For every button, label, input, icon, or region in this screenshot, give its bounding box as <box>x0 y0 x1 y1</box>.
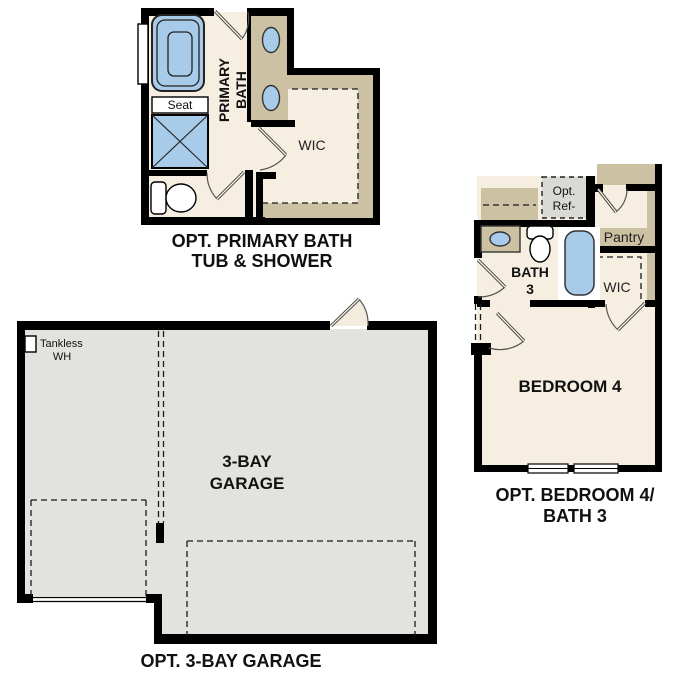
section-garage: Tankless WH 3-BAY GARAGE OPT. 3-BAY GARA… <box>17 299 437 671</box>
window <box>138 24 148 84</box>
floor-plan-canvas: PRIMARY BATH WIC Seat OPT. PRIMARY BATH … <box>0 0 687 687</box>
tankless-water-heater <box>25 336 36 352</box>
tankless-wh-label-line: Tankless <box>40 338 83 350</box>
room-label-garage-line: GARAGE <box>210 474 285 493</box>
door-swing <box>331 299 368 326</box>
room-label-bath3-line: 3 <box>526 281 534 297</box>
opt-ref-label-line: Opt. <box>553 184 576 198</box>
opt-ref-label-line: Ref- <box>553 199 576 213</box>
section-title-line: OPT. BEDROOM 4/ <box>495 485 654 505</box>
toilet <box>151 182 196 214</box>
room-label-garage-line: 3-BAY <box>222 452 272 471</box>
room-label-wic: WIC <box>603 279 630 295</box>
garage-door <box>33 596 146 603</box>
garage-bay-floor <box>24 329 162 598</box>
room-label-line: PRIMARY <box>216 57 232 122</box>
tankless-wh-label-line: WH <box>53 351 71 363</box>
section-title-line: BATH 3 <box>543 506 607 526</box>
garage-floor <box>162 329 428 634</box>
room-label-wic: WIC <box>298 137 325 153</box>
tub <box>565 231 594 295</box>
kitchen-counter <box>481 188 538 223</box>
room-label-line: BATH <box>233 71 249 109</box>
shower <box>152 115 208 168</box>
sink <box>263 28 280 53</box>
section-title-line: TUB & SHOWER <box>192 251 333 271</box>
section-title-line: OPT. PRIMARY BATH <box>172 231 353 251</box>
window <box>574 464 618 473</box>
room-label-bath3-line: BATH <box>511 264 549 280</box>
tub <box>152 15 204 91</box>
section-title-line: OPT. 3-BAY GARAGE <box>140 651 321 671</box>
room-label-bedroom4: BEDROOM 4 <box>519 377 623 396</box>
section-bedroom4-bath3: BATH 3 Pantry WIC Opt. Ref- BEDROOM 4 OP… <box>471 164 662 526</box>
seat-label: Seat <box>168 98 193 112</box>
sink <box>490 232 510 246</box>
section-primary-bath: PRIMARY BATH WIC Seat OPT. PRIMARY BATH … <box>138 8 380 271</box>
window <box>528 464 568 473</box>
sink <box>263 86 280 111</box>
room-label-pantry: Pantry <box>604 229 644 245</box>
floor-plan-page: PRIMARY BATH WIC Seat OPT. PRIMARY BATH … <box>0 0 687 687</box>
